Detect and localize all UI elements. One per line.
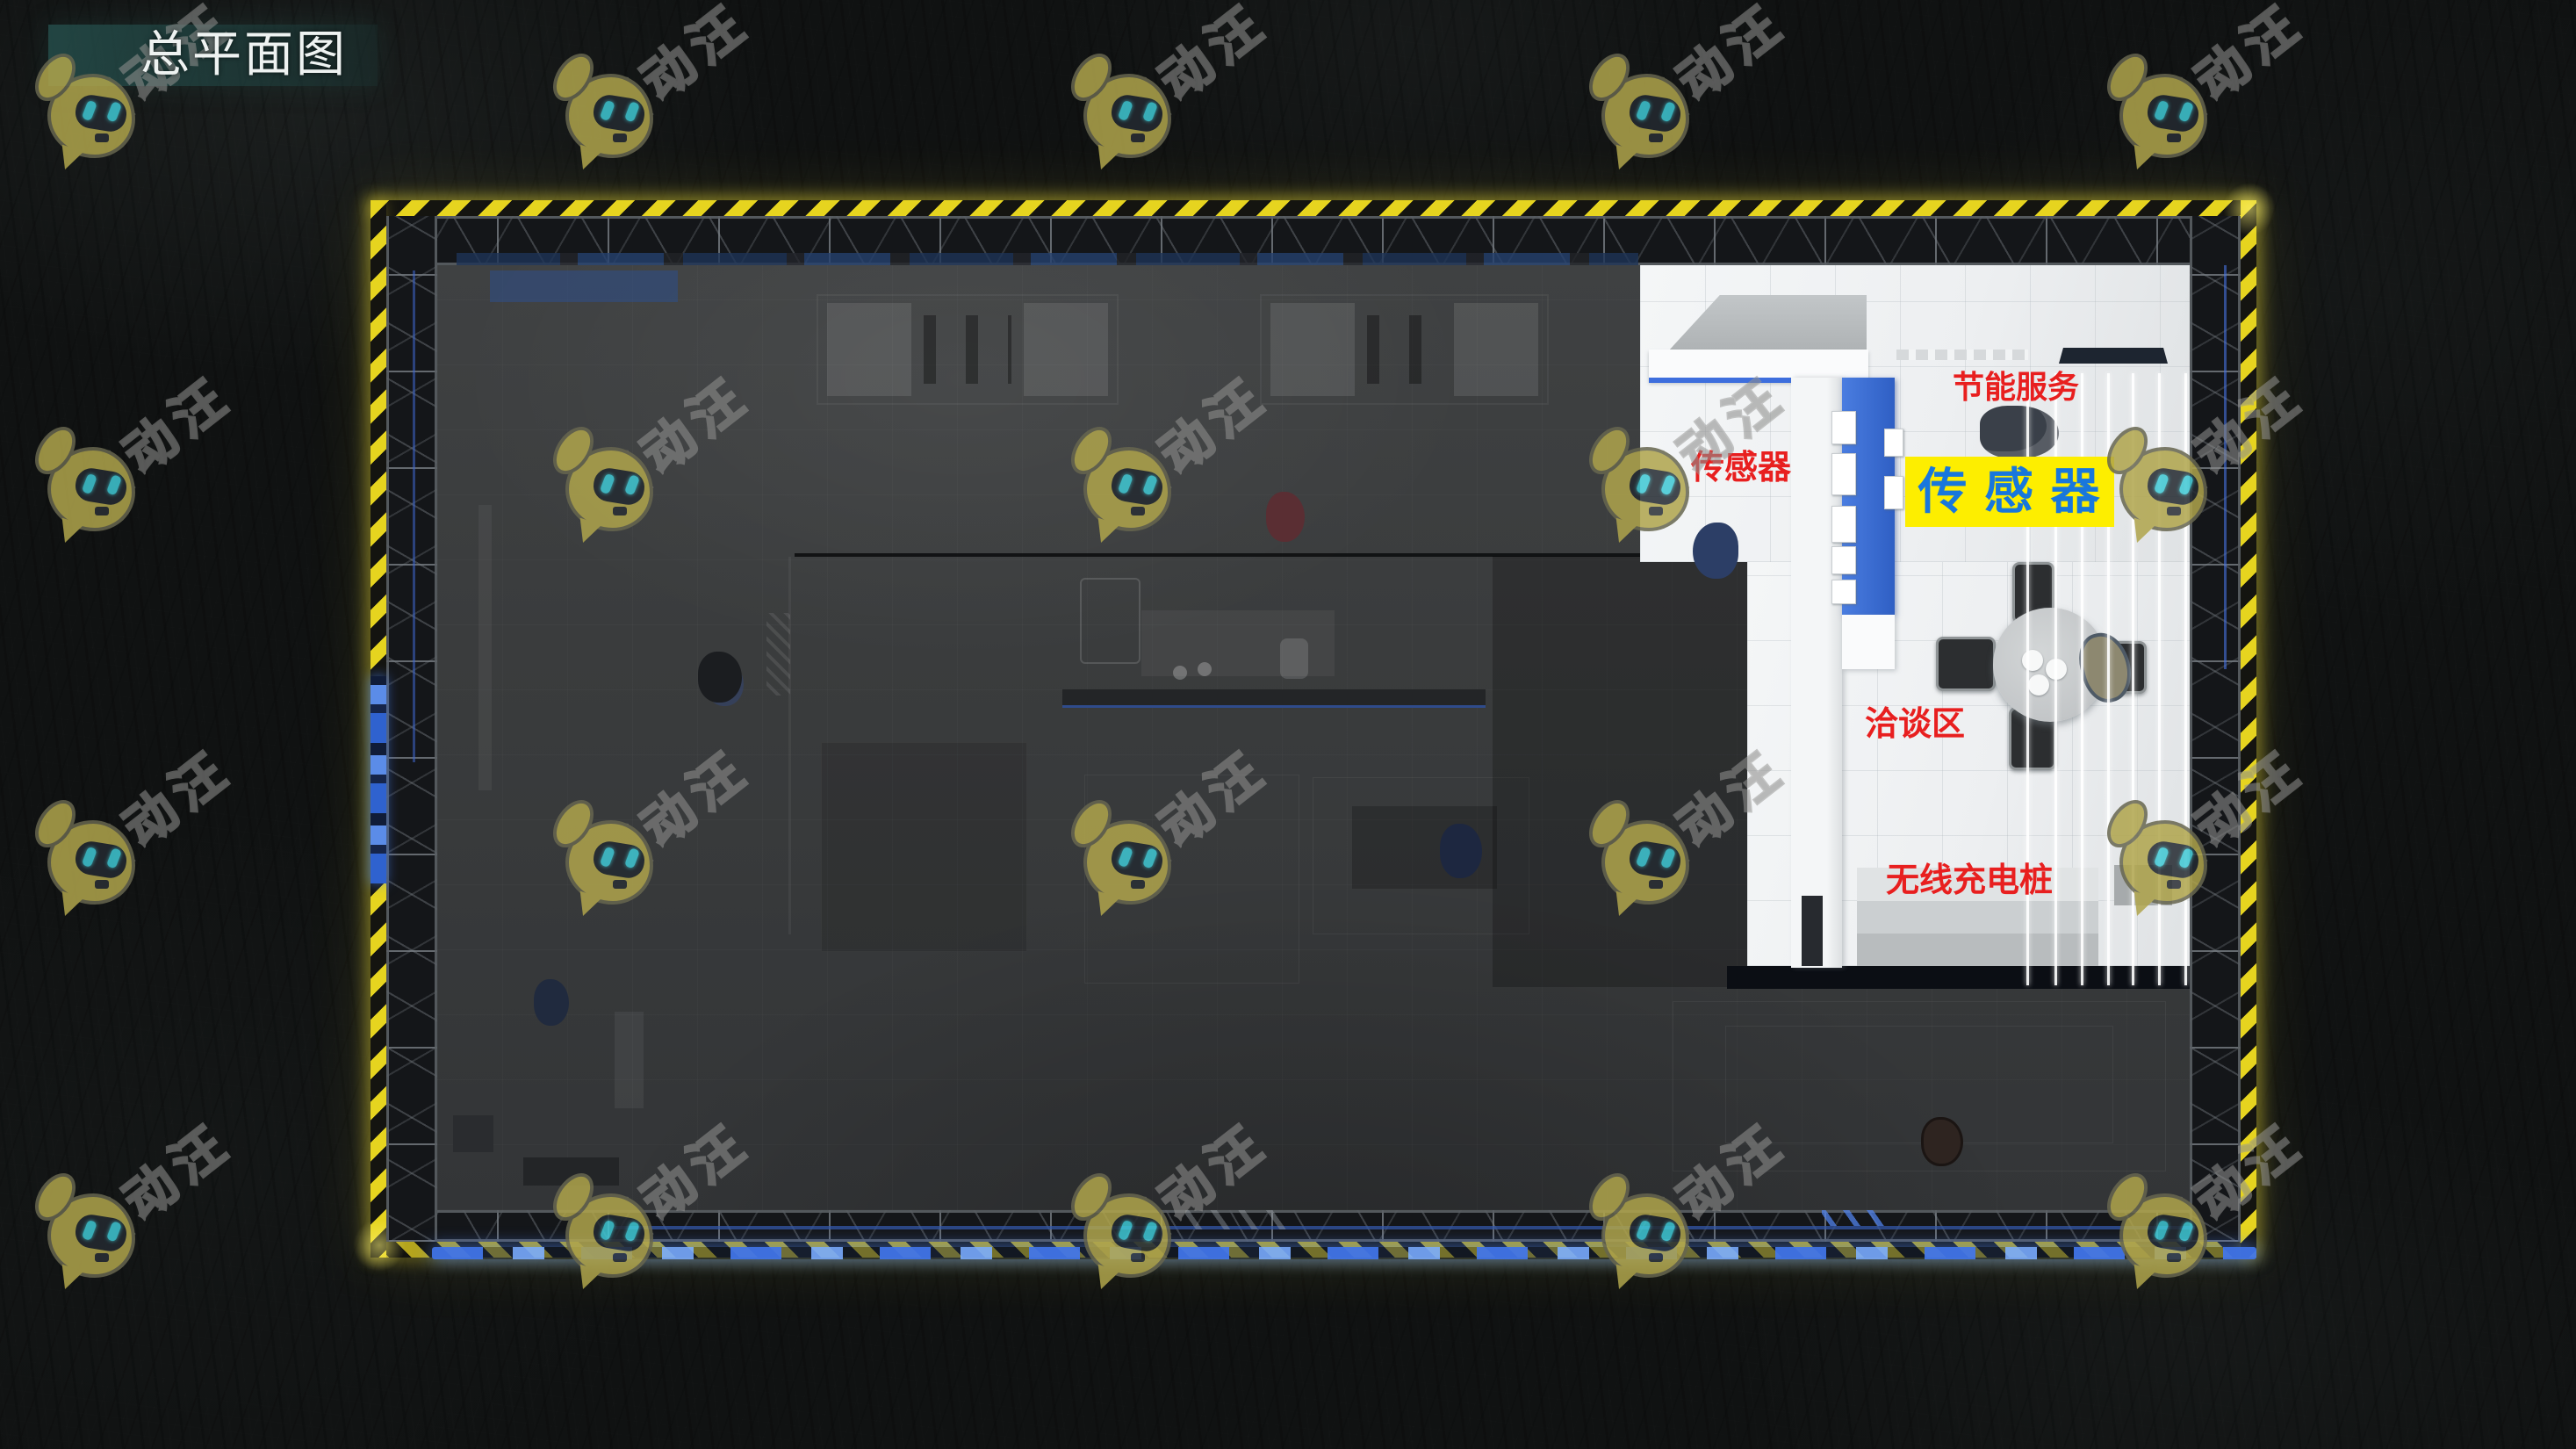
wall-canopy — [1649, 350, 1868, 381]
floor-plan: 节能服务 传感器 传 感 器 洽谈区 无线充电桩 — [371, 200, 2256, 1258]
display-wall-end — [1842, 615, 1895, 669]
label-negotiation-area: 洽谈区 — [1865, 708, 1965, 741]
truss-left — [386, 216, 437, 1242]
shelf-cluster — [1260, 294, 1549, 405]
chair-dim — [1080, 578, 1140, 664]
led-strip-bottom — [432, 1247, 2256, 1259]
service-counter-dark — [2059, 348, 2168, 364]
light-strip — [2158, 373, 2161, 985]
person-figure — [1693, 523, 1738, 579]
person-figure — [1440, 824, 1482, 878]
bottom-rail-blue — [615, 1226, 2195, 1229]
blue-accent-line — [1649, 378, 1793, 383]
cup — [2022, 650, 2043, 671]
led-strip-left — [371, 676, 386, 883]
label-sensor-small: 传感器 — [1691, 451, 1791, 485]
shelf-card — [1831, 546, 1856, 574]
shelf-card — [1831, 506, 1856, 543]
vent-strip — [1896, 350, 2028, 360]
booth-zone — [1084, 775, 1299, 984]
caution-stripe-top — [371, 200, 2256, 216]
light-strip — [2184, 373, 2187, 985]
shelf-card — [1831, 411, 1856, 444]
truss-right — [2190, 216, 2241, 1242]
label-sensor-highlight-text: 传 感 器 — [1918, 467, 2101, 516]
person-figure — [534, 979, 569, 1026]
label-wireless-charging: 无线充电桩 — [1886, 864, 2053, 898]
cup — [2028, 674, 2049, 696]
label-energy-service: 节能服务 — [1953, 371, 2079, 403]
shelf-card — [1884, 429, 1903, 457]
booth-zone — [821, 742, 1027, 952]
stage-edge-dark — [1727, 966, 2190, 989]
light-panel-dim — [479, 505, 492, 790]
person-figure — [1266, 492, 1305, 542]
counter-dim — [1062, 689, 1486, 708]
device-pod-dim — [1280, 638, 1308, 679]
cup-dim — [1198, 662, 1212, 676]
person-figure — [1980, 406, 2059, 458]
reception-desk-blue — [490, 270, 678, 302]
cup-dim — [1173, 666, 1187, 680]
page-title: 总平面图 — [140, 30, 348, 79]
person-figure — [1921, 1117, 1963, 1166]
truss-blue-brace — [413, 270, 415, 762]
booth-interior: 节能服务 传感器 传 感 器 洽谈区 无线充电桩 — [437, 265, 2190, 1210]
shelf-cluster — [817, 294, 1119, 405]
shelf-card — [1831, 453, 1856, 495]
person-figure — [698, 652, 742, 703]
bench-dim — [453, 1115, 493, 1152]
side-cabinet — [1802, 896, 1823, 966]
bench-dim — [523, 1157, 619, 1186]
label-sensor-highlight: 传 感 器 — [1905, 457, 2114, 527]
hatch-decal — [766, 613, 790, 696]
chair-west — [1936, 637, 1996, 691]
truss-blue-brace — [2224, 265, 2227, 669]
shelf-card — [1831, 580, 1856, 604]
totem-dim — [615, 1012, 644, 1108]
charging-pad — [2114, 865, 2172, 905]
caution-stripe-right — [2241, 200, 2256, 1258]
floor-marking — [1725, 1026, 2113, 1143]
light-strip — [2132, 373, 2134, 985]
shelf-card — [1884, 476, 1903, 509]
carpet-dark-zone — [1493, 556, 1747, 987]
